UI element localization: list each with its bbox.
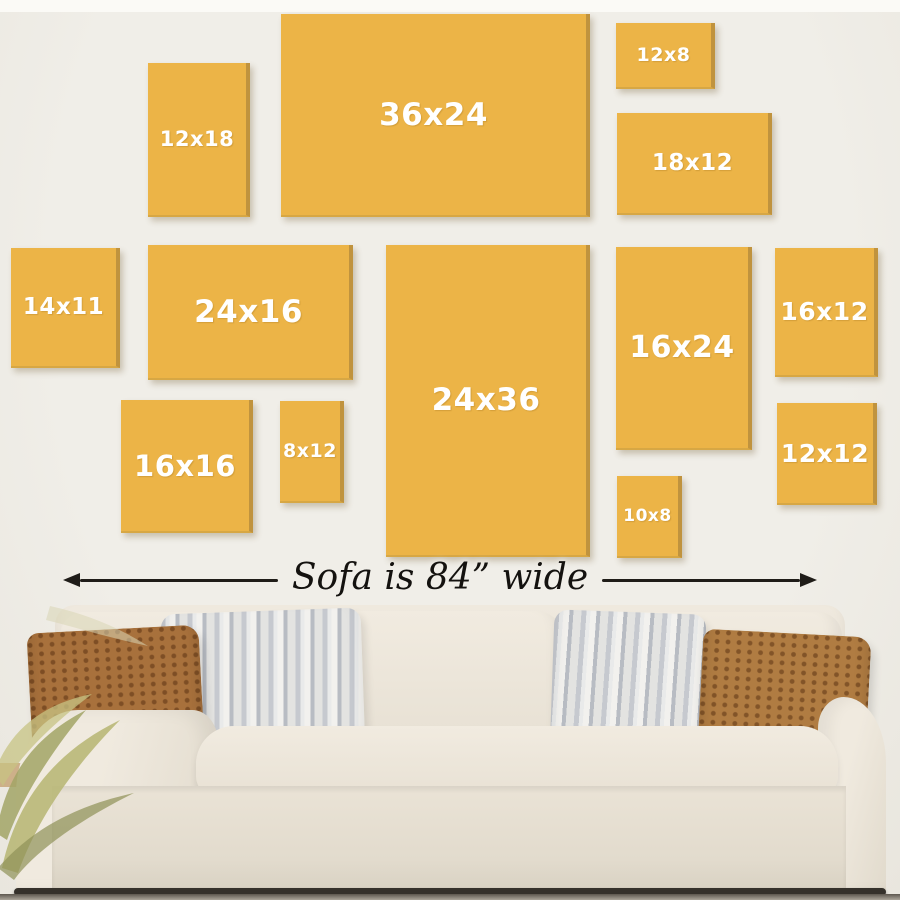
art-frame-label: 8x12	[283, 440, 337, 462]
art-frame-36x24: 36x24	[281, 14, 590, 217]
art-frame-18x12: 18x12	[617, 113, 772, 215]
sofa-width-dimension: Sofa is 84” wide	[63, 556, 817, 604]
wall-art-size-guide: 12x1836x2412x818x1214x1124x1624x3616x241…	[0, 0, 900, 900]
art-frame-12x8: 12x8	[616, 23, 715, 89]
art-frames-layer: 12x1836x2412x818x1214x1124x1624x3616x241…	[0, 0, 900, 620]
art-frame-16x12: 16x12	[775, 248, 878, 377]
art-frame-label: 12x8	[637, 44, 691, 66]
art-frame-label: 10x8	[623, 506, 671, 526]
art-frame-label: 12x12	[781, 439, 869, 468]
art-frame-label: 36x24	[379, 97, 488, 133]
art-frame-label: 24x36	[432, 382, 541, 418]
art-frame-label: 16x16	[134, 449, 236, 483]
floor-edge	[0, 894, 900, 900]
right-arrowhead-icon	[800, 573, 817, 587]
art-frame-label: 18x12	[652, 150, 733, 176]
art-frame-label: 16x12	[780, 297, 868, 326]
plant-leaves	[0, 568, 174, 888]
art-frame-label: 14x11	[23, 294, 104, 320]
art-frame-label: 24x16	[194, 294, 303, 330]
art-frame-12x18: 12x18	[148, 63, 250, 217]
art-frame-24x16: 24x16	[148, 245, 353, 380]
art-frame-24x36: 24x36	[386, 245, 590, 557]
dimension-line-right	[602, 579, 800, 582]
art-frame-14x11: 14x11	[11, 248, 120, 368]
art-frame-16x16: 16x16	[121, 400, 253, 533]
art-frame-12x12: 12x12	[777, 403, 877, 505]
art-frame-label: 12x18	[160, 127, 235, 151]
art-frame-10x8: 10x8	[617, 476, 682, 558]
sofa-width-label: Sofa is 84” wide	[292, 557, 588, 598]
art-frame-8x12: 8x12	[280, 401, 344, 503]
art-frame-16x24: 16x24	[616, 247, 752, 450]
art-frame-label: 16x24	[629, 330, 734, 365]
